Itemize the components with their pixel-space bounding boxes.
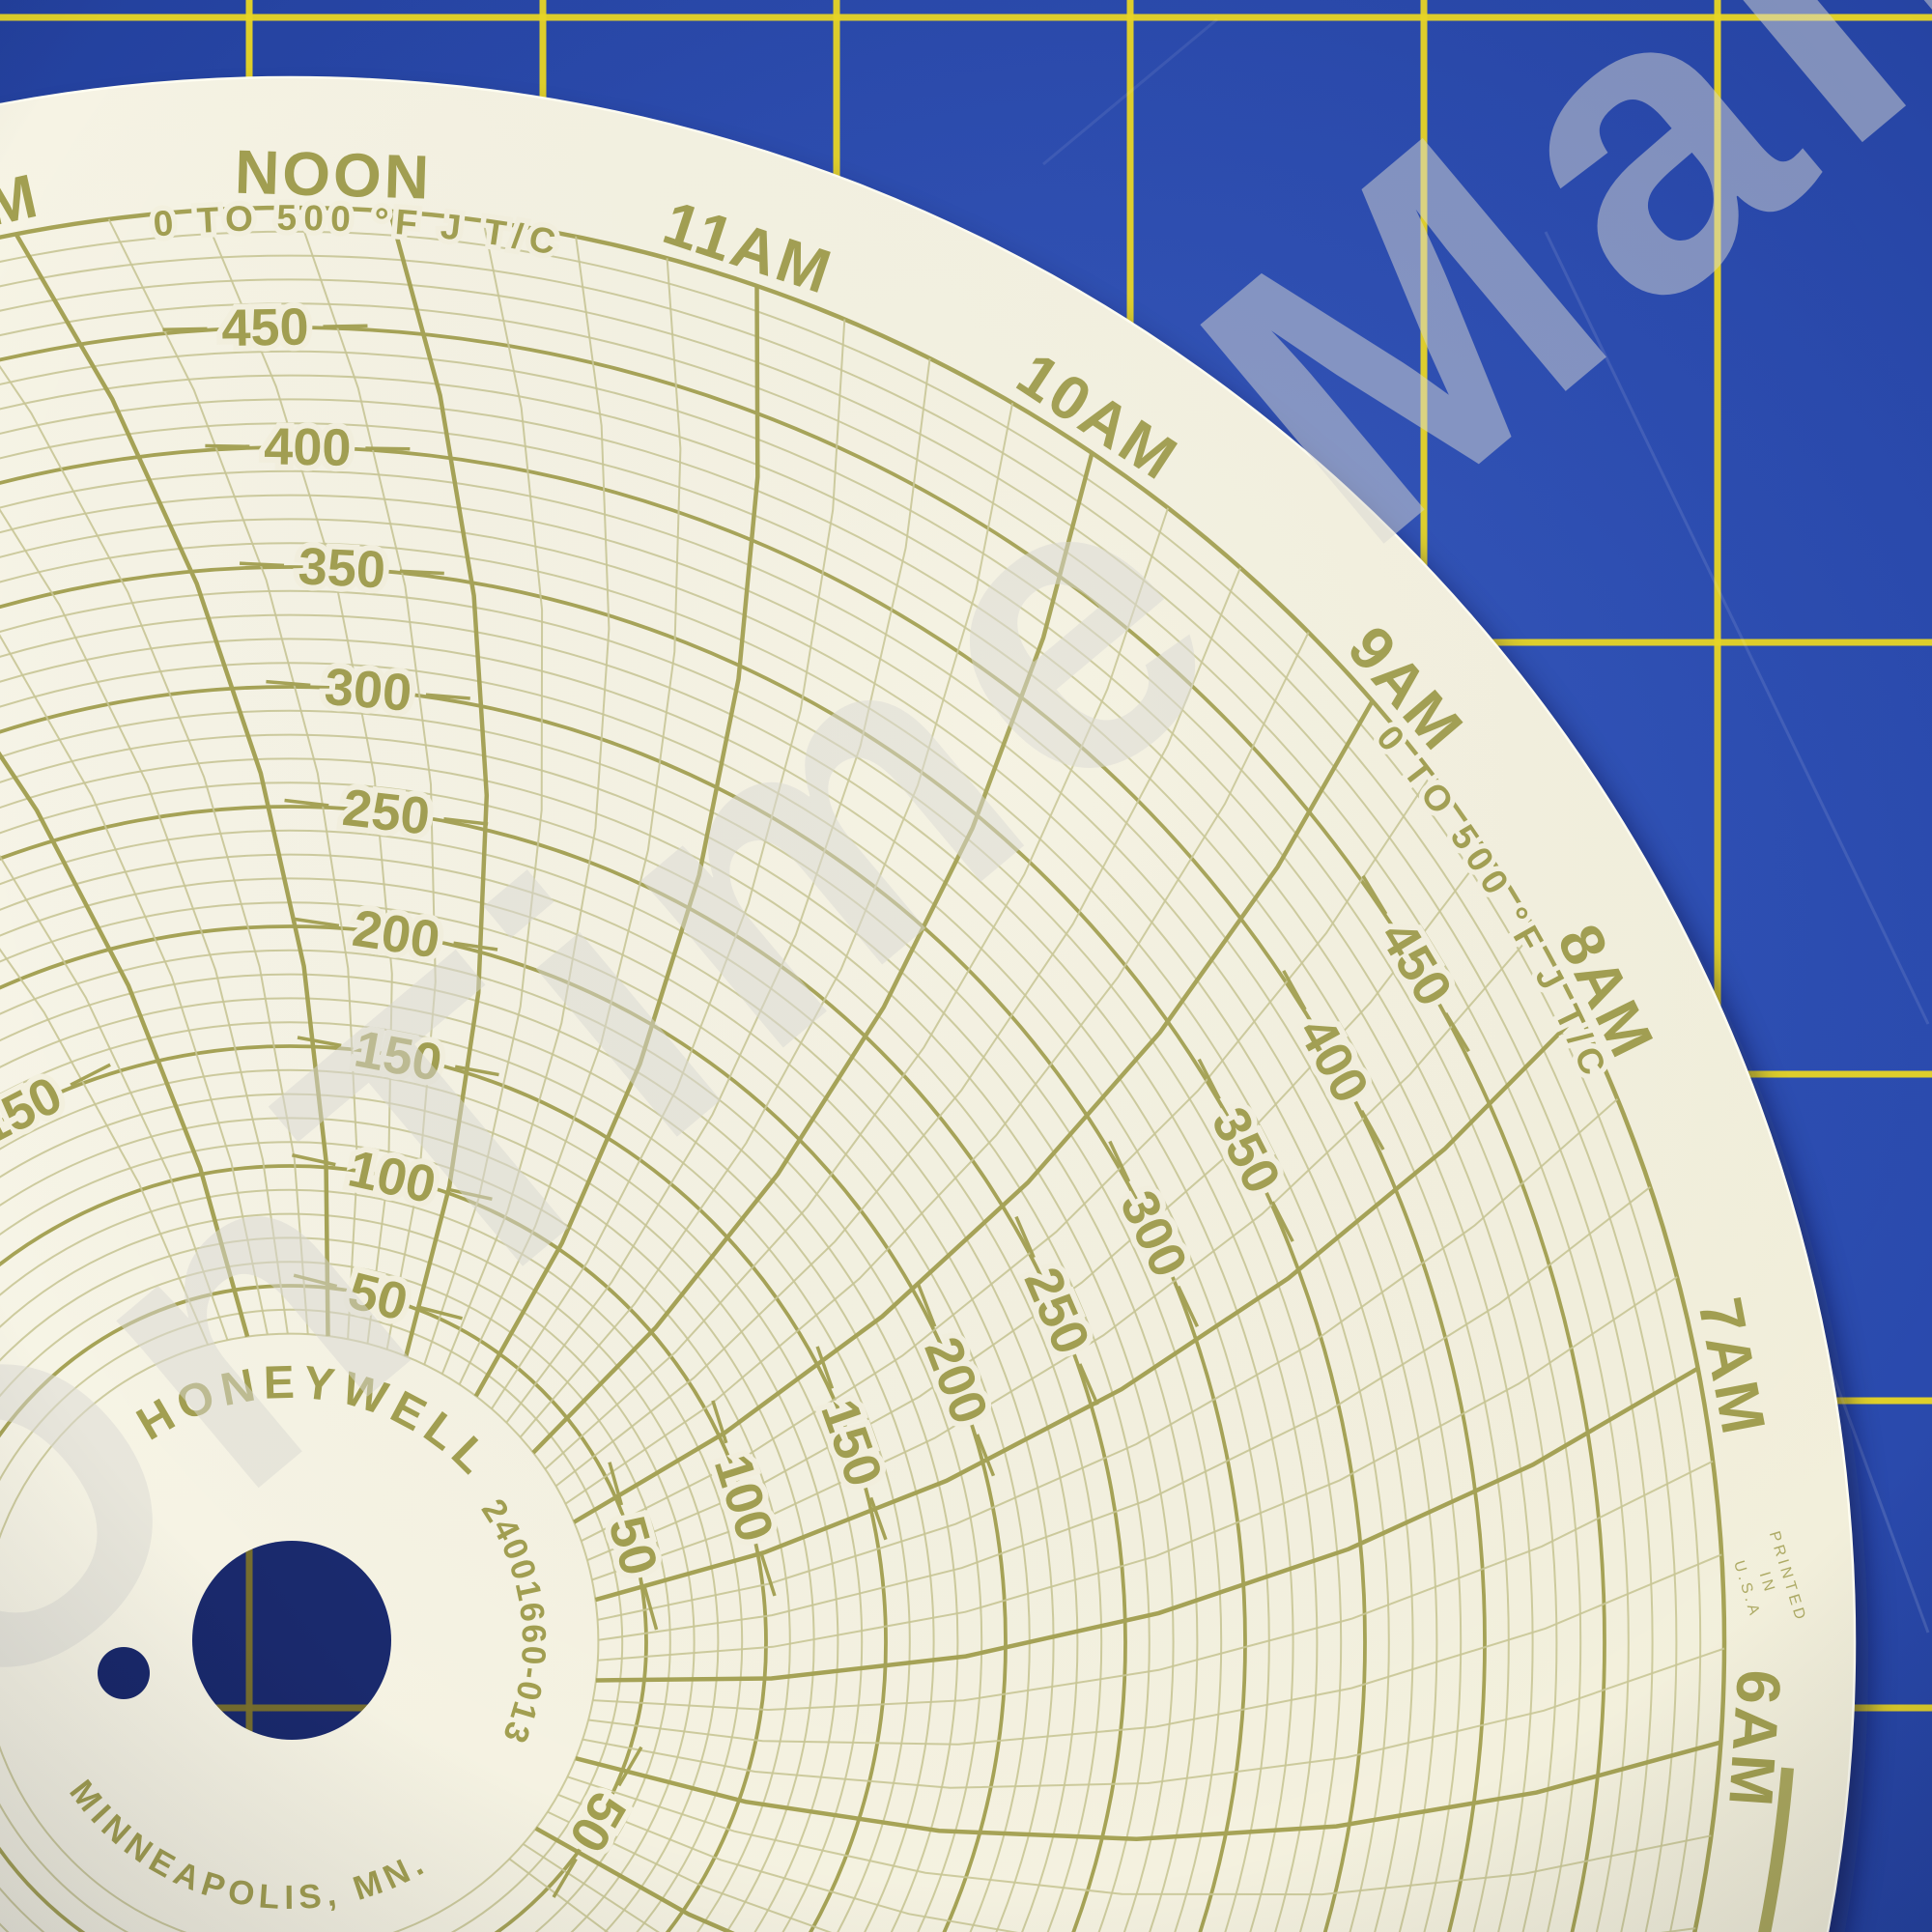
scale-label: 450 xyxy=(221,298,309,357)
scale-tick xyxy=(240,563,284,565)
scale-label: 250 xyxy=(340,779,433,846)
scale-label: 400 xyxy=(264,417,352,476)
scale-tick xyxy=(365,448,410,449)
product-photo-circular-chart: 0 TO 500 °F J T/C0 TO 500 °F J T/C450400… xyxy=(0,0,1932,1932)
chart-photo-canvas: 0 TO 500 °F J T/C0 TO 500 °F J T/C450400… xyxy=(0,0,1932,1932)
scale-label: 350 xyxy=(297,537,386,599)
scale-tick xyxy=(163,328,208,329)
scale-tick xyxy=(400,571,444,573)
scale-tick xyxy=(205,446,249,447)
scale-label: 300 xyxy=(323,658,414,723)
time-label: NOON xyxy=(234,137,433,213)
scale-tick xyxy=(323,326,367,327)
